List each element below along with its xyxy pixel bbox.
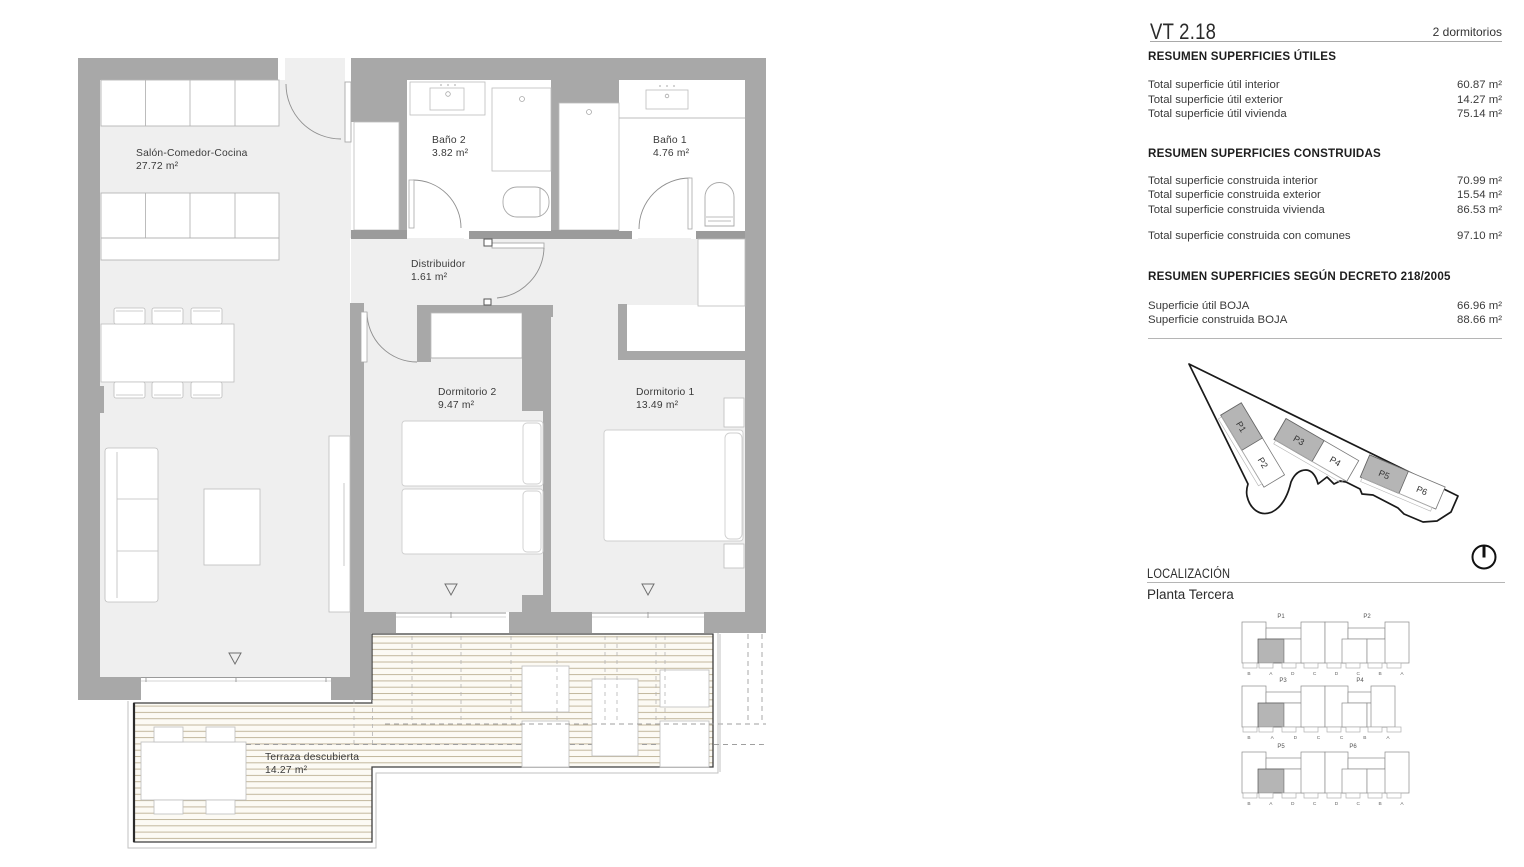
svg-text:D: D — [1291, 801, 1295, 807]
svg-text:B: B — [1379, 671, 1382, 677]
svg-text:3.82 m²: 3.82 m² — [432, 148, 469, 159]
svg-text:C: C — [1357, 801, 1361, 807]
svg-text:D: D — [1294, 735, 1298, 741]
svg-text:C: C — [1340, 735, 1344, 741]
svg-text:B: B — [1247, 671, 1250, 677]
svg-text:P5: P5 — [1277, 744, 1285, 750]
svg-text:A: A — [1269, 801, 1273, 807]
svg-text:1.61 m²: 1.61 m² — [411, 272, 448, 283]
svg-text:P4: P4 — [1356, 678, 1364, 684]
svg-text:B: B — [1379, 801, 1382, 807]
svg-text:Baño 1: Baño 1 — [653, 135, 687, 146]
svg-text:C: C — [1313, 801, 1317, 807]
svg-text:Salón-Comedor-Cocina: Salón-Comedor-Cocina — [136, 148, 248, 159]
svg-text:9.47 m²: 9.47 m² — [438, 400, 475, 411]
svg-text:Dormitorio 2: Dormitorio 2 — [438, 387, 497, 398]
svg-text:C: C — [1317, 735, 1321, 741]
svg-text:B: B — [1363, 735, 1366, 741]
svg-text:P2: P2 — [1363, 614, 1371, 620]
svg-text:C: C — [1357, 671, 1361, 677]
svg-text:27.72 m²: 27.72 m² — [136, 161, 179, 172]
svg-text:14.27 m²: 14.27 m² — [265, 765, 308, 776]
svg-text:C: C — [1313, 671, 1317, 677]
svg-text:4.76 m²: 4.76 m² — [653, 148, 690, 159]
svg-text:D: D — [1291, 671, 1295, 677]
svg-text:Dormitorio 1: Dormitorio 1 — [636, 387, 695, 398]
svg-text:B: B — [1247, 801, 1250, 807]
svg-text:P1: P1 — [1277, 614, 1285, 620]
svg-text:A: A — [1400, 801, 1404, 807]
svg-text:Baño 2: Baño 2 — [432, 135, 466, 146]
svg-text:B: B — [1247, 735, 1250, 741]
svg-text:13.49 m²: 13.49 m² — [636, 400, 679, 411]
svg-text:Distribuidor: Distribuidor — [411, 259, 466, 270]
svg-text:P6: P6 — [1349, 744, 1357, 750]
svg-text:A: A — [1271, 735, 1275, 741]
svg-text:Terraza descubierta: Terraza descubierta — [265, 752, 359, 763]
svg-text:D: D — [1335, 801, 1339, 807]
svg-text:D: D — [1335, 671, 1339, 677]
svg-text:A: A — [1400, 671, 1404, 677]
svg-text:A: A — [1386, 735, 1390, 741]
svg-text:A: A — [1269, 671, 1273, 677]
svg-text:P3: P3 — [1279, 678, 1287, 684]
